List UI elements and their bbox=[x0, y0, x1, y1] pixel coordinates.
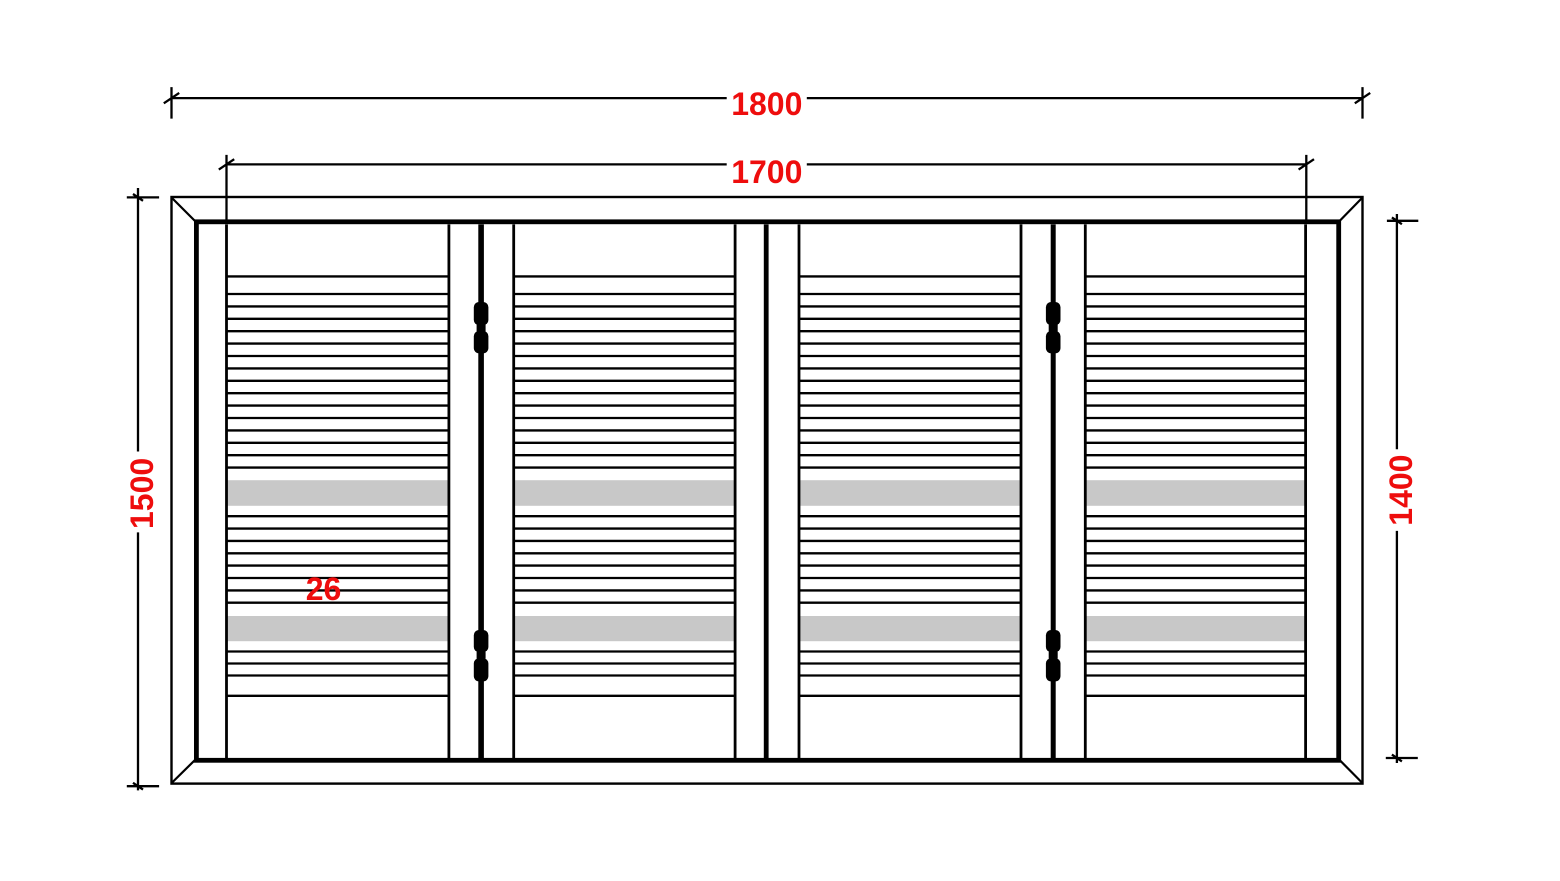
svg-text:1500: 1500 bbox=[124, 458, 160, 529]
svg-text:1700: 1700 bbox=[731, 154, 802, 190]
svg-text:1400: 1400 bbox=[1383, 455, 1419, 526]
svg-text:26: 26 bbox=[306, 571, 342, 607]
svg-text:1800: 1800 bbox=[731, 86, 802, 122]
